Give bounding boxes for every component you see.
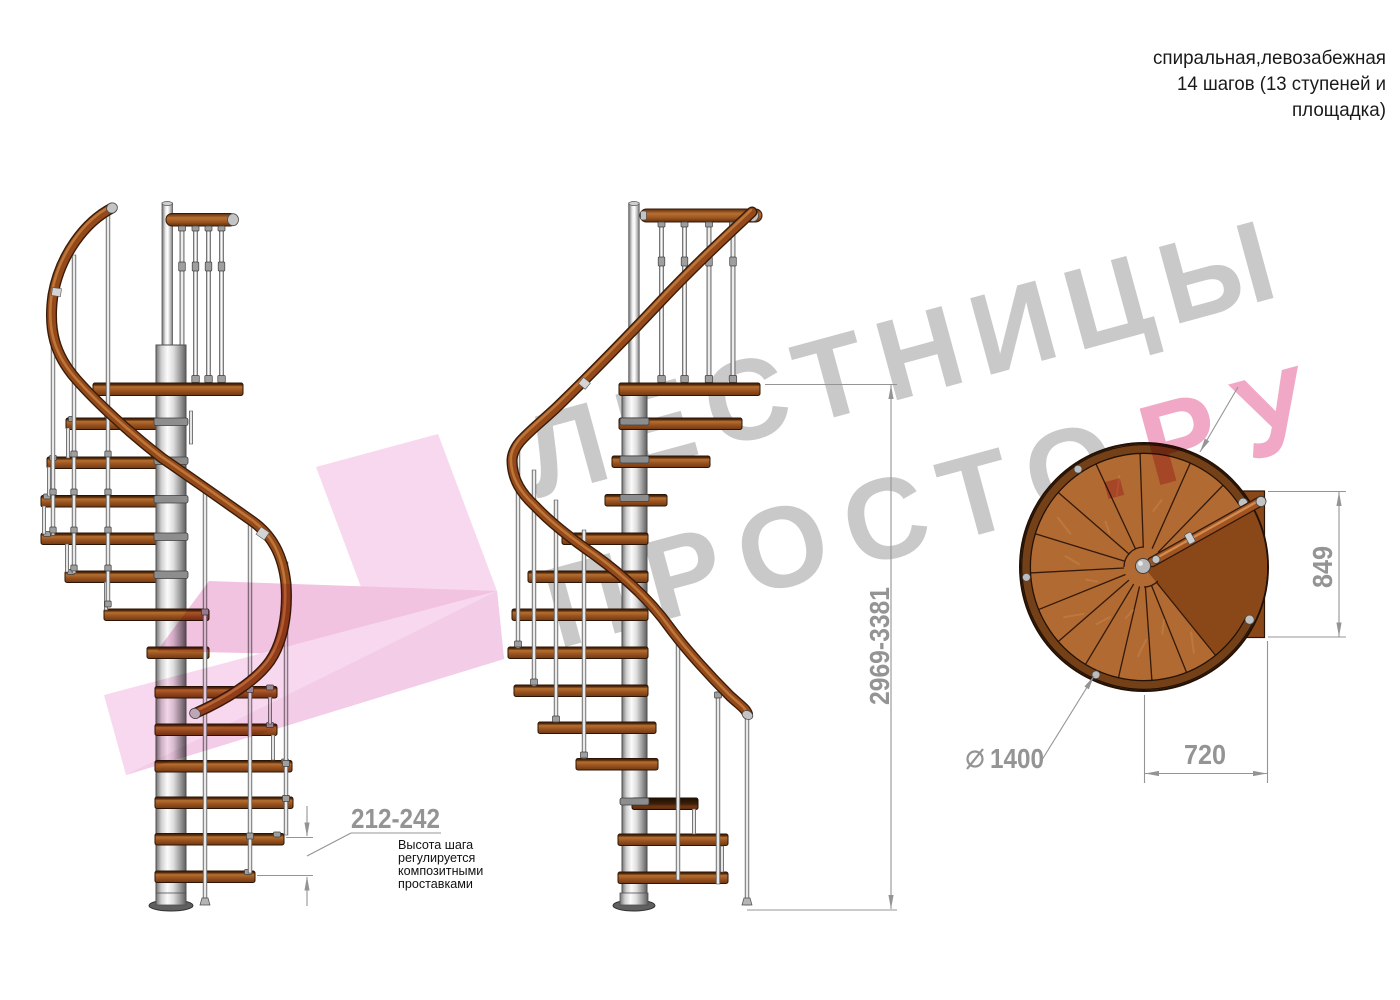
svg-text:композитными: композитными	[398, 864, 483, 878]
svg-text:РУ: РУ	[1126, 337, 1347, 512]
svg-text:849: 849	[1307, 546, 1338, 588]
svg-text:проставками: проставками	[398, 877, 473, 891]
svg-text:Высота шага: Высота шага	[398, 838, 473, 852]
svg-text:2969-3381: 2969-3381	[864, 587, 895, 705]
svg-text:14 шагов (13 ступеней и: 14 шагов (13 ступеней и	[1177, 73, 1386, 95]
svg-text:спиральная,левозабежная: спиральная,левозабежная	[1153, 47, 1386, 69]
svg-text:720: 720	[1184, 739, 1226, 770]
svg-text:площадка): площадка)	[1292, 99, 1386, 121]
svg-text:212-242: 212-242	[351, 803, 440, 834]
svg-text:регулируется: регулируется	[398, 851, 475, 865]
svg-text:1400: 1400	[990, 743, 1044, 774]
